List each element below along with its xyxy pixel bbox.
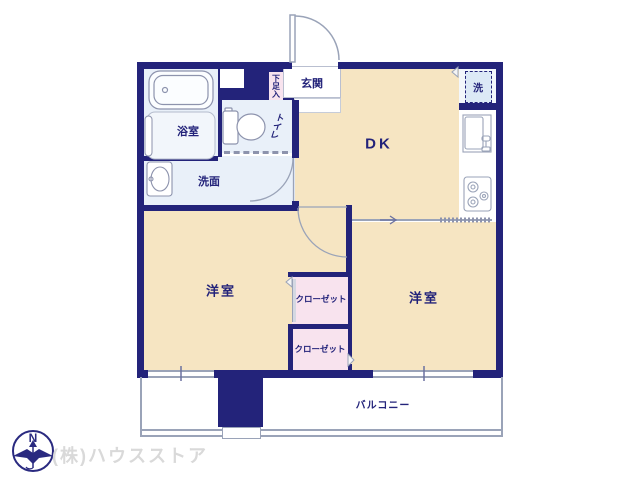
- washroom-door-icon: [250, 158, 294, 201]
- closet-upper-opening-arrow: [286, 277, 292, 287]
- plan-overlay: N: [0, 0, 640, 480]
- sliding-door-icon: [352, 216, 492, 224]
- genkan-label: 玄関: [301, 75, 323, 91]
- stove-icon: [464, 177, 491, 211]
- closet-upper-label: クローゼット: [295, 293, 346, 305]
- entrance-door-icon: [290, 15, 339, 62]
- laundry-opening-arrow: [452, 67, 458, 77]
- west-right-label: 洋室: [409, 288, 439, 307]
- closet-lower-label: クローゼット: [294, 343, 345, 355]
- toilet-icon: [223, 108, 265, 144]
- dk-label: DK: [365, 136, 393, 153]
- kitchen-sink-icon: [463, 115, 491, 152]
- company-watermark: (株)ハウスストア: [52, 442, 208, 468]
- washroom-label: 洗面: [198, 173, 220, 189]
- floor-plan: N 玄関 下足入 DK 浴室 トイレ 洗面 洗 洋室 洋室 クローゼット クロー…: [0, 0, 640, 480]
- shoe-box-label: 下足入: [272, 74, 281, 98]
- window-tick-marks: [181, 366, 424, 381]
- west-left-door-icon: [298, 207, 347, 257]
- washstand-icon: [147, 162, 172, 196]
- west-left-label: 洋室: [206, 281, 236, 300]
- compass-icon: N: [13, 431, 53, 471]
- laundry-label: 洗: [473, 80, 483, 95]
- opening-arrows: [286, 67, 458, 366]
- bathroom-label: 浴室: [177, 123, 199, 139]
- closet-lower-opening-arrow: [348, 354, 354, 366]
- bathtub-icon: [149, 71, 213, 109]
- balcony-label: バルコニー: [356, 397, 411, 412]
